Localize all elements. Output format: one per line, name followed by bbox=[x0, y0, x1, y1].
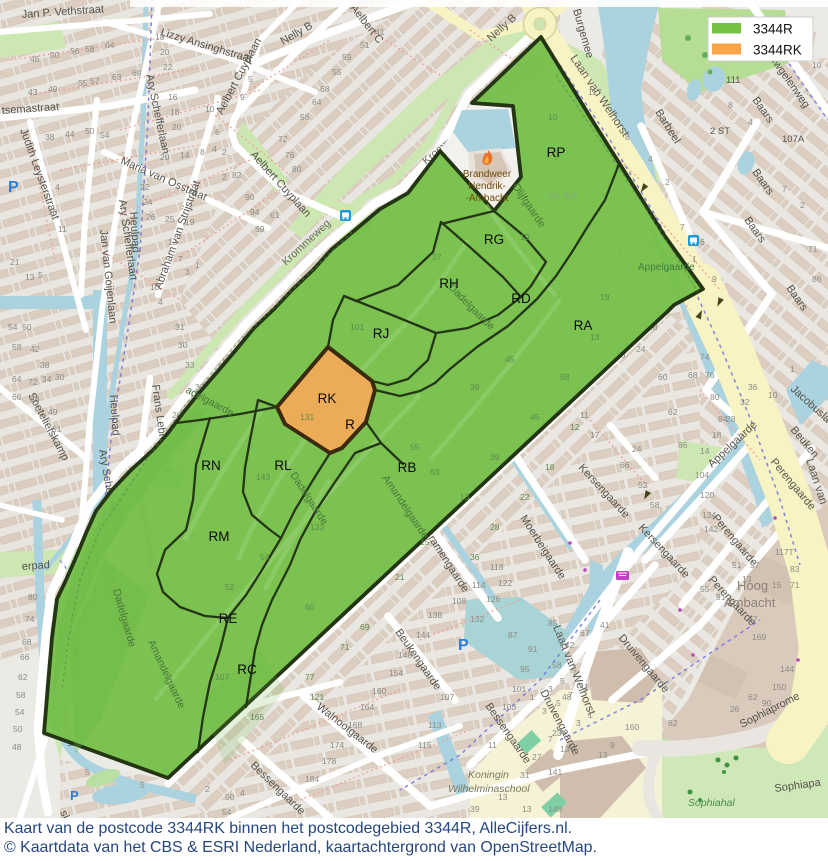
svg-text:62: 62 bbox=[748, 692, 758, 702]
svg-text:143: 143 bbox=[256, 472, 270, 482]
svg-text:66: 66 bbox=[620, 460, 630, 470]
svg-text:2: 2 bbox=[222, 147, 227, 157]
svg-text:P: P bbox=[8, 179, 19, 196]
svg-text:85: 85 bbox=[548, 618, 558, 628]
svg-text:16: 16 bbox=[168, 92, 178, 102]
svg-text:45: 45 bbox=[530, 412, 540, 422]
svg-text:117: 117 bbox=[588, 87, 602, 97]
svg-text:71: 71 bbox=[340, 642, 350, 652]
svg-text:24: 24 bbox=[632, 444, 642, 454]
svg-text:7: 7 bbox=[572, 668, 577, 678]
svg-text:11: 11 bbox=[58, 224, 67, 234]
svg-text:114: 114 bbox=[472, 580, 486, 590]
svg-text:27: 27 bbox=[532, 752, 542, 762]
svg-text:82: 82 bbox=[668, 718, 678, 728]
svg-text:76: 76 bbox=[285, 150, 295, 160]
svg-text:1: 1 bbox=[790, 364, 795, 374]
svg-text:4: 4 bbox=[55, 182, 60, 192]
svg-text:68: 68 bbox=[688, 370, 698, 380]
svg-text:11: 11 bbox=[488, 740, 497, 750]
svg-text:7: 7 bbox=[568, 690, 573, 700]
svg-text:178: 178 bbox=[322, 756, 336, 766]
svg-text:7: 7 bbox=[178, 254, 183, 264]
svg-text:80: 80 bbox=[710, 392, 720, 402]
svg-text:38: 38 bbox=[40, 360, 50, 370]
svg-text:1: 1 bbox=[530, 692, 535, 702]
svg-text:24: 24 bbox=[636, 344, 646, 354]
svg-text:RB: RB bbox=[398, 460, 417, 475]
svg-text:Appelgaarde: Appelgaarde bbox=[638, 262, 695, 273]
svg-text:18: 18 bbox=[170, 107, 180, 117]
svg-text:28: 28 bbox=[30, 394, 40, 404]
svg-text:63: 63 bbox=[430, 467, 440, 477]
svg-text:69: 69 bbox=[132, 68, 142, 78]
svg-text:5: 5 bbox=[560, 726, 565, 736]
svg-text:9: 9 bbox=[610, 740, 615, 750]
svg-text:169: 169 bbox=[752, 632, 766, 642]
svg-text:108: 108 bbox=[452, 596, 466, 606]
svg-text:66: 66 bbox=[20, 652, 30, 662]
svg-text:2: 2 bbox=[222, 172, 227, 182]
svg-text:90: 90 bbox=[245, 192, 255, 202]
svg-text:5: 5 bbox=[38, 270, 43, 280]
svg-text:20: 20 bbox=[160, 152, 170, 162]
svg-text:56: 56 bbox=[70, 46, 80, 56]
svg-text:72: 72 bbox=[28, 377, 38, 387]
svg-text:54: 54 bbox=[15, 707, 25, 717]
svg-text:50: 50 bbox=[225, 792, 235, 802]
svg-text:54: 54 bbox=[8, 322, 18, 332]
svg-text:74: 74 bbox=[25, 614, 35, 624]
svg-text:52: 52 bbox=[225, 582, 235, 592]
svg-text:36: 36 bbox=[470, 552, 480, 562]
svg-text:67: 67 bbox=[580, 628, 590, 638]
svg-text:51: 51 bbox=[52, 424, 62, 434]
svg-text:20: 20 bbox=[172, 122, 182, 132]
svg-text:RC: RC bbox=[237, 662, 257, 677]
svg-text:5: 5 bbox=[556, 698, 561, 708]
svg-text:95: 95 bbox=[520, 664, 530, 674]
svg-text:18: 18 bbox=[545, 462, 555, 472]
svg-text:1: 1 bbox=[195, 260, 200, 270]
svg-text:64: 64 bbox=[12, 374, 22, 384]
svg-text:RL: RL bbox=[274, 458, 292, 473]
svg-text:51: 51 bbox=[360, 40, 370, 50]
svg-text:94: 94 bbox=[250, 207, 260, 217]
svg-text:28: 28 bbox=[490, 522, 500, 532]
svg-text:14: 14 bbox=[700, 446, 710, 456]
svg-text:26: 26 bbox=[146, 212, 156, 222]
svg-text:9: 9 bbox=[240, 92, 245, 102]
svg-text:131: 131 bbox=[300, 412, 314, 422]
svg-text:Sophiahal: Sophiahal bbox=[688, 797, 735, 809]
svg-text:101: 101 bbox=[350, 322, 364, 332]
svg-text:87: 87 bbox=[508, 630, 518, 640]
svg-text:30: 30 bbox=[55, 372, 65, 382]
svg-text:59: 59 bbox=[342, 52, 352, 62]
svg-text:74: 74 bbox=[700, 352, 710, 362]
svg-text:4: 4 bbox=[648, 154, 653, 164]
svg-text:RJ: RJ bbox=[373, 326, 390, 341]
svg-text:160: 160 bbox=[625, 722, 639, 732]
svg-text:3344R: 3344R bbox=[753, 22, 793, 37]
svg-text:64: 64 bbox=[105, 40, 115, 50]
svg-text:13: 13 bbox=[25, 272, 35, 282]
svg-text:49: 49 bbox=[48, 84, 58, 94]
svg-text:55: 55 bbox=[78, 78, 88, 88]
svg-text:19: 19 bbox=[520, 232, 530, 242]
svg-text:7: 7 bbox=[548, 734, 553, 744]
svg-text:6: 6 bbox=[700, 237, 705, 247]
svg-text:10: 10 bbox=[768, 390, 778, 400]
svg-text:103: 103 bbox=[502, 702, 516, 712]
svg-text:De Ark: De Ark bbox=[548, 191, 579, 202]
svg-text:13: 13 bbox=[598, 750, 608, 760]
svg-text:-Ambacht: -Ambacht bbox=[466, 193, 509, 204]
svg-text:RM: RM bbox=[209, 529, 230, 544]
svg-text:3344RK: 3344RK bbox=[753, 43, 802, 58]
svg-text:55: 55 bbox=[410, 442, 420, 452]
svg-text:18: 18 bbox=[712, 430, 722, 440]
svg-text:3: 3 bbox=[542, 706, 547, 716]
svg-text:37: 37 bbox=[432, 252, 442, 262]
svg-text:32: 32 bbox=[740, 397, 750, 407]
svg-text:49: 49 bbox=[48, 407, 58, 417]
svg-text:58: 58 bbox=[85, 44, 95, 54]
svg-text:21: 21 bbox=[10, 257, 20, 267]
svg-text:Ambacht: Ambacht bbox=[724, 595, 776, 610]
svg-text:2 ST: 2 ST bbox=[710, 126, 730, 137]
svg-text:137: 137 bbox=[560, 744, 574, 754]
svg-text:RA: RA bbox=[574, 318, 593, 333]
svg-text:7: 7 bbox=[680, 222, 685, 232]
svg-text:54: 54 bbox=[222, 807, 232, 817]
svg-text:5: 5 bbox=[85, 767, 90, 777]
svg-text:18: 18 bbox=[155, 32, 165, 42]
svg-text:33: 33 bbox=[185, 360, 195, 370]
svg-text:68: 68 bbox=[22, 637, 32, 647]
svg-text:9: 9 bbox=[712, 274, 717, 284]
svg-text:22: 22 bbox=[140, 182, 150, 192]
svg-text:22: 22 bbox=[163, 62, 173, 72]
svg-text:50: 50 bbox=[13, 724, 23, 734]
svg-text:RE: RE bbox=[219, 611, 238, 626]
svg-text:39: 39 bbox=[470, 382, 480, 392]
svg-text:154: 154 bbox=[389, 668, 403, 678]
svg-text:118: 118 bbox=[490, 562, 504, 572]
svg-text:erpad: erpad bbox=[21, 559, 50, 573]
svg-text:120: 120 bbox=[700, 490, 714, 500]
svg-text:115: 115 bbox=[418, 740, 432, 750]
svg-text:© Kaartdata van het CBS & ESRI: © Kaartdata van het CBS & ESRI Nederland… bbox=[4, 839, 597, 856]
svg-text:41: 41 bbox=[375, 27, 385, 37]
svg-text:66: 66 bbox=[12, 392, 22, 402]
svg-text:58: 58 bbox=[560, 372, 570, 382]
svg-text:8: 8 bbox=[200, 147, 205, 157]
svg-text:3: 3 bbox=[576, 718, 581, 728]
svg-text:8: 8 bbox=[728, 100, 733, 110]
svg-text:63: 63 bbox=[112, 72, 122, 82]
svg-text:P: P bbox=[458, 637, 469, 654]
svg-text:24: 24 bbox=[143, 197, 153, 207]
svg-text:113: 113 bbox=[428, 720, 442, 730]
svg-text:57: 57 bbox=[90, 76, 100, 86]
svg-text:15: 15 bbox=[772, 580, 782, 590]
svg-text:RD: RD bbox=[511, 291, 531, 306]
svg-text:56: 56 bbox=[300, 112, 310, 122]
svg-text:19: 19 bbox=[600, 292, 610, 302]
svg-text:160: 160 bbox=[372, 686, 386, 696]
svg-text:11: 11 bbox=[580, 682, 589, 692]
svg-text:69: 69 bbox=[255, 224, 265, 234]
svg-text:Hendrik-: Hendrik- bbox=[468, 181, 506, 192]
svg-text:43: 43 bbox=[28, 87, 38, 97]
svg-text:28: 28 bbox=[726, 414, 736, 424]
svg-text:51: 51 bbox=[732, 560, 742, 570]
svg-text:RK: RK bbox=[318, 391, 337, 406]
svg-text:13: 13 bbox=[522, 804, 532, 814]
svg-text:121: 121 bbox=[310, 692, 324, 702]
svg-text:168: 168 bbox=[348, 720, 362, 730]
svg-text:77: 77 bbox=[305, 672, 315, 682]
svg-text:21: 21 bbox=[395, 572, 405, 582]
svg-text:80: 80 bbox=[292, 164, 302, 174]
svg-text:4: 4 bbox=[212, 144, 217, 154]
svg-text:45: 45 bbox=[505, 354, 515, 364]
svg-text:87: 87 bbox=[748, 614, 758, 624]
svg-text:55: 55 bbox=[332, 67, 342, 77]
svg-text:4: 4 bbox=[240, 788, 245, 798]
svg-text:3: 3 bbox=[548, 684, 553, 694]
svg-text:42: 42 bbox=[30, 344, 40, 354]
svg-text:62: 62 bbox=[18, 672, 28, 682]
svg-text:54: 54 bbox=[260, 552, 270, 562]
svg-text:2: 2 bbox=[665, 177, 670, 187]
svg-text:149: 149 bbox=[548, 804, 562, 814]
svg-text:126: 126 bbox=[486, 594, 500, 604]
svg-text:31: 31 bbox=[175, 322, 185, 332]
svg-text:69: 69 bbox=[360, 622, 370, 632]
svg-text:144: 144 bbox=[780, 664, 794, 674]
svg-text:107A: 107A bbox=[782, 134, 805, 145]
svg-text:165: 165 bbox=[250, 712, 264, 722]
svg-text:68: 68 bbox=[320, 84, 330, 94]
svg-text:12: 12 bbox=[570, 422, 580, 432]
svg-text:6: 6 bbox=[215, 127, 220, 137]
svg-text:101: 101 bbox=[512, 684, 526, 694]
svg-text:5: 5 bbox=[140, 780, 145, 790]
svg-text:Kaart van de postcode 3344RK b: Kaart van de postcode 3344RK binnen het … bbox=[4, 820, 572, 837]
svg-text:1: 1 bbox=[588, 710, 593, 720]
svg-text:13: 13 bbox=[590, 332, 600, 342]
svg-text:122: 122 bbox=[498, 578, 512, 588]
svg-text:164: 164 bbox=[360, 702, 374, 712]
svg-text:10: 10 bbox=[150, 282, 160, 292]
svg-text:144: 144 bbox=[416, 630, 430, 640]
svg-text:107: 107 bbox=[440, 692, 454, 702]
svg-text:3: 3 bbox=[185, 267, 190, 277]
svg-text:60: 60 bbox=[658, 372, 668, 382]
svg-text:91: 91 bbox=[716, 592, 726, 602]
svg-text:13: 13 bbox=[168, 237, 178, 247]
svg-text:141: 141 bbox=[548, 767, 562, 777]
svg-text:Wilhelminaschool: Wilhelminaschool bbox=[448, 783, 530, 795]
svg-text:86: 86 bbox=[678, 440, 688, 450]
svg-text:26: 26 bbox=[730, 704, 740, 714]
svg-text:50: 50 bbox=[50, 50, 60, 60]
svg-text:72: 72 bbox=[278, 134, 288, 144]
svg-text:5: 5 bbox=[560, 676, 565, 686]
svg-text:55: 55 bbox=[700, 584, 710, 594]
svg-text:111: 111 bbox=[726, 75, 740, 86]
svg-text:8: 8 bbox=[625, 132, 630, 142]
svg-text:14: 14 bbox=[180, 150, 190, 160]
svg-text:41: 41 bbox=[600, 620, 610, 630]
svg-text:86: 86 bbox=[812, 274, 822, 284]
svg-text:58: 58 bbox=[552, 660, 562, 670]
svg-text:71: 71 bbox=[808, 244, 818, 254]
svg-text:R: R bbox=[345, 417, 355, 432]
svg-text:80: 80 bbox=[28, 592, 38, 602]
svg-text:37: 37 bbox=[750, 560, 760, 570]
svg-text:34: 34 bbox=[42, 374, 52, 384]
svg-text:7: 7 bbox=[782, 184, 787, 194]
svg-text:36: 36 bbox=[748, 382, 758, 392]
svg-text:Brandweer: Brandweer bbox=[463, 169, 512, 180]
svg-text:142: 142 bbox=[704, 524, 718, 534]
svg-text:132: 132 bbox=[470, 614, 484, 624]
svg-text:RP: RP bbox=[547, 145, 566, 160]
svg-text:174: 174 bbox=[330, 740, 344, 750]
svg-text:184: 184 bbox=[305, 774, 319, 784]
svg-text:58: 58 bbox=[650, 500, 660, 510]
svg-text:54: 54 bbox=[100, 130, 110, 140]
svg-text:107: 107 bbox=[215, 672, 229, 682]
svg-text:P: P bbox=[70, 788, 79, 803]
svg-text:50: 50 bbox=[22, 322, 32, 332]
svg-text:RG: RG bbox=[484, 232, 504, 247]
svg-text:150: 150 bbox=[772, 682, 786, 692]
svg-text:58: 58 bbox=[16, 690, 26, 700]
svg-text:10: 10 bbox=[48, 207, 58, 217]
svg-text:RH: RH bbox=[439, 276, 459, 291]
svg-text:4: 4 bbox=[748, 117, 753, 127]
svg-text:76: 76 bbox=[705, 370, 715, 380]
svg-text:138: 138 bbox=[428, 610, 442, 620]
svg-text:19: 19 bbox=[185, 217, 195, 227]
svg-text:RN: RN bbox=[201, 458, 221, 473]
svg-text:142: 142 bbox=[560, 640, 574, 650]
svg-text:2: 2 bbox=[205, 784, 210, 794]
svg-text:91: 91 bbox=[528, 644, 538, 654]
svg-text:71: 71 bbox=[790, 580, 800, 590]
svg-text:61: 61 bbox=[270, 210, 280, 220]
svg-text:20: 20 bbox=[160, 47, 170, 57]
svg-text:10: 10 bbox=[548, 112, 558, 122]
svg-text:2: 2 bbox=[800, 200, 805, 210]
svg-text:117T: 117T bbox=[775, 547, 794, 557]
svg-text:83: 83 bbox=[790, 564, 800, 574]
svg-text:58: 58 bbox=[12, 342, 22, 352]
svg-text:52: 52 bbox=[638, 480, 648, 490]
svg-text:Koningin: Koningin bbox=[468, 769, 509, 781]
svg-text:4: 4 bbox=[158, 297, 163, 307]
svg-text:39: 39 bbox=[470, 804, 480, 814]
svg-text:38: 38 bbox=[45, 132, 55, 142]
svg-text:10: 10 bbox=[205, 104, 215, 114]
svg-text:82: 82 bbox=[232, 170, 242, 180]
svg-text:46: 46 bbox=[30, 54, 40, 64]
svg-text:25: 25 bbox=[165, 214, 175, 224]
svg-text:13: 13 bbox=[498, 792, 508, 802]
svg-text:31: 31 bbox=[520, 770, 530, 780]
svg-text:13: 13 bbox=[742, 574, 752, 584]
svg-text:62: 62 bbox=[668, 407, 678, 417]
svg-text:134: 134 bbox=[702, 510, 716, 520]
svg-text:22: 22 bbox=[520, 492, 530, 502]
svg-text:44: 44 bbox=[65, 129, 75, 139]
svg-text:13: 13 bbox=[460, 492, 470, 502]
svg-text:148: 148 bbox=[398, 650, 412, 660]
svg-text:48: 48 bbox=[12, 742, 22, 752]
svg-text:90: 90 bbox=[762, 698, 772, 708]
svg-text:30: 30 bbox=[178, 340, 188, 350]
svg-text:64: 64 bbox=[312, 97, 322, 107]
svg-text:104: 104 bbox=[695, 470, 709, 480]
svg-text:17: 17 bbox=[590, 430, 600, 440]
svg-text:5: 5 bbox=[248, 74, 253, 84]
svg-text:50: 50 bbox=[85, 126, 95, 136]
svg-text:39: 39 bbox=[490, 452, 500, 462]
svg-text:60: 60 bbox=[305, 602, 315, 612]
svg-text:11: 11 bbox=[580, 410, 589, 420]
